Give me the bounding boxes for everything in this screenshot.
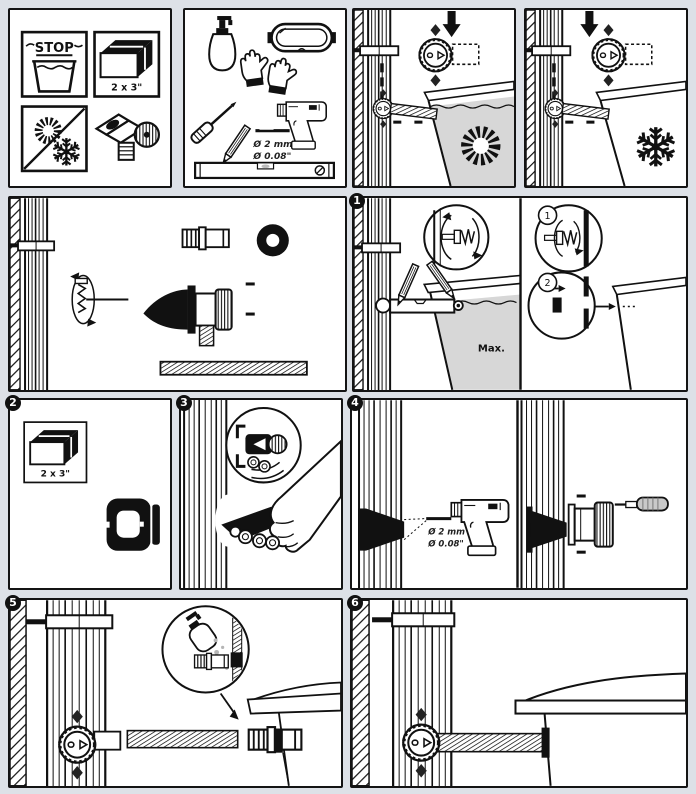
lumber-icon: 2 x 3" (95, 32, 159, 96)
valve-handwheel-icon (592, 24, 624, 86)
summer-use-illustration (354, 10, 514, 186)
house-wall (352, 600, 369, 786)
screw-part (246, 313, 255, 316)
step-badge: 3 (176, 395, 192, 411)
rain-barrel-empty (596, 81, 686, 186)
snowflake-icon (636, 127, 676, 166)
rain-barrel (515, 673, 686, 785)
detail-marker-2: 2 (545, 278, 551, 289)
downspout-post (183, 400, 227, 588)
downspout-post (358, 400, 402, 588)
connector-seal-band (274, 729, 283, 753)
step1-illustration: Max. (354, 198, 686, 390)
faucet-device-icon (97, 115, 159, 160)
hose-connector-small (195, 653, 229, 669)
no-sun-frost-icon (22, 107, 86, 171)
step1-panel: 1 Max. (352, 196, 688, 392)
spirit-level-icon (195, 163, 334, 178)
down-arrow-icon (443, 11, 461, 37)
downspout-post (539, 10, 563, 186)
threaded-hose (435, 734, 545, 752)
step4-panel: 4 Ø 2 mm Ø 0.08" (350, 398, 688, 590)
stop-label: STOP (35, 41, 74, 56)
step5-panel: 5 (8, 598, 343, 788)
warnings-panel: STOP 2 x 3" (8, 8, 172, 188)
down-arrow-icon (580, 11, 598, 37)
downspout-post (521, 400, 565, 588)
threaded-hose (127, 731, 237, 748)
detail-circle-1: 1 (536, 205, 602, 271)
tools-panel: Ø 2 mm Ø 0.08" (183, 8, 347, 188)
spirit-level (376, 299, 463, 313)
winter-use-panel (524, 8, 688, 188)
winter-use-illustration (526, 10, 686, 186)
drill-bit-imperial-label: Ø 0.08" (427, 539, 464, 550)
house-wall (10, 198, 20, 390)
valve-outlet (94, 732, 120, 750)
step6-illustration (352, 600, 686, 786)
house-wall (10, 600, 26, 786)
rain-barrel (424, 81, 514, 186)
downspout-post (24, 198, 48, 390)
drill-bit-icon (255, 129, 289, 130)
faucet-part (143, 285, 231, 345)
step-badge: 2 (5, 395, 21, 411)
faucet-body (569, 503, 613, 547)
screw-detail-circle (424, 205, 488, 269)
detail-circle-2: 2 (529, 272, 595, 338)
step-badge: 5 (5, 595, 21, 611)
screwdriver-icon (615, 498, 668, 511)
ghost-connector (626, 44, 652, 64)
lumber-size-label: 2 x 3" (111, 82, 142, 93)
hose-connector-part (183, 227, 229, 249)
step-badge: 4 (347, 395, 363, 411)
lumber-inset: 2 x 3" (24, 422, 86, 482)
step2-panel: 2 2 x 3" (8, 398, 172, 590)
tools-illustration: Ø 2 mm Ø 0.08" (185, 10, 345, 186)
step5-illustration (10, 600, 341, 786)
mounting-bracket-part (105, 499, 160, 551)
house-wall (354, 198, 363, 390)
drill-bit-metric-label: Ø 2 mm (252, 139, 292, 150)
step2-illustration: 2 x 3" (10, 400, 170, 588)
soap-bottle-icon (209, 16, 235, 70)
parts-illustration (10, 198, 345, 390)
screw-part (577, 551, 586, 554)
drill-bit-metric-label: Ø 2 mm (427, 527, 465, 538)
hose-wall-cap (542, 728, 550, 758)
soap-detail-circle (162, 606, 248, 692)
gloves-icon (239, 48, 298, 96)
warnings-illustration: STOP 2 x 3" (10, 10, 170, 186)
rain-barrel-right (613, 277, 686, 389)
stop-water-icon: STOP (22, 32, 86, 96)
drill-bit-imperial-label: Ø 0.08" (252, 151, 291, 162)
pencil-icon (221, 125, 251, 164)
pointer-arrow (221, 694, 235, 714)
downspout-post (367, 10, 391, 186)
ghost-connector (453, 44, 479, 64)
goggles-icon (268, 24, 336, 51)
house-wall (354, 10, 363, 186)
mounting-screw-part (70, 272, 128, 326)
downspout-post (367, 198, 391, 390)
step-badge: 1 (349, 193, 365, 209)
step3-illustration (181, 400, 341, 588)
rubber-washer-part (257, 224, 289, 256)
house-wall (526, 10, 535, 186)
summer-use-panel (352, 8, 516, 188)
step-badge: 6 (347, 595, 363, 611)
lumber-size-label: 2 x 3" (41, 469, 70, 479)
placement-detail-circle (226, 408, 300, 482)
detail-marker-1: 1 (545, 211, 551, 222)
parts-overview-panel (8, 196, 347, 392)
screw-part (577, 495, 586, 498)
max-water-label: Max. (478, 344, 505, 355)
screwdriver-icon (190, 98, 240, 145)
instruction-sheet: STOP 2 x 3" (0, 0, 696, 794)
step6-panel: 6 (350, 598, 688, 788)
valve-handwheel-icon (419, 24, 451, 86)
screw-part (246, 282, 255, 285)
step3-panel: 3 (179, 398, 343, 590)
step4-illustration: Ø 2 mm Ø 0.08" (352, 400, 686, 588)
threaded-hose-part (160, 362, 306, 375)
rain-barrel (424, 275, 520, 389)
